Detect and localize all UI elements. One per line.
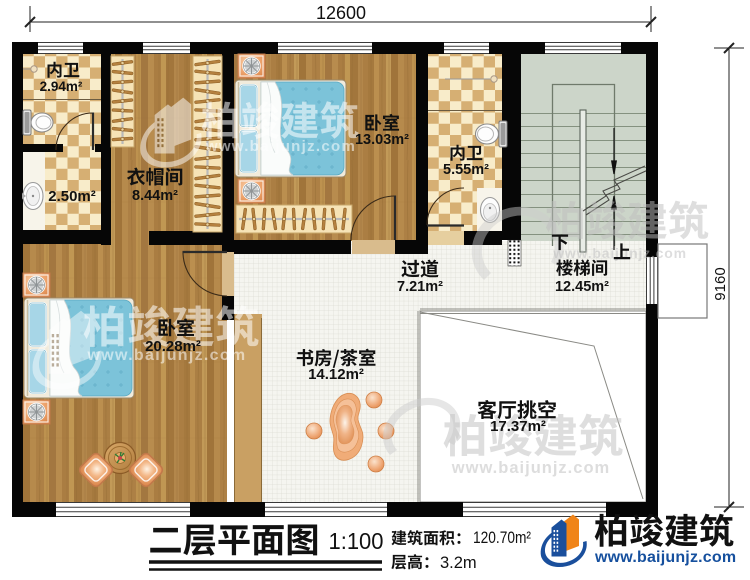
svg-text:www.baijunjz.com: www.baijunjz.com [205, 138, 356, 155]
svg-text:17.37m²: 17.37m² [490, 418, 546, 435]
svg-text:20.28m²: 20.28m² [145, 338, 201, 355]
svg-text:www.baijunjz.com: www.baijunjz.com [451, 459, 610, 477]
svg-text:3.2m: 3.2m [440, 554, 477, 572]
svg-text:14.12m²: 14.12m² [308, 366, 364, 383]
svg-text:12.45m²: 12.45m² [555, 279, 609, 295]
svg-text:12600: 12600 [316, 3, 366, 23]
svg-text:120.70m²: 120.70m² [473, 529, 531, 547]
svg-text:7.21m²: 7.21m² [397, 279, 443, 295]
svg-text:8.44m²: 8.44m² [132, 188, 178, 204]
svg-text:13.03m²: 13.03m² [355, 132, 409, 148]
svg-text:1:100: 1:100 [329, 528, 384, 554]
svg-text:5.55m²: 5.55m² [443, 162, 489, 178]
svg-text:2.94m²: 2.94m² [40, 79, 83, 94]
svg-text:2.50m²: 2.50m² [48, 188, 96, 205]
svg-text:9160: 9160 [712, 267, 729, 300]
svg-text:www.baijunjz.com: www.baijunjz.com [594, 549, 736, 566]
